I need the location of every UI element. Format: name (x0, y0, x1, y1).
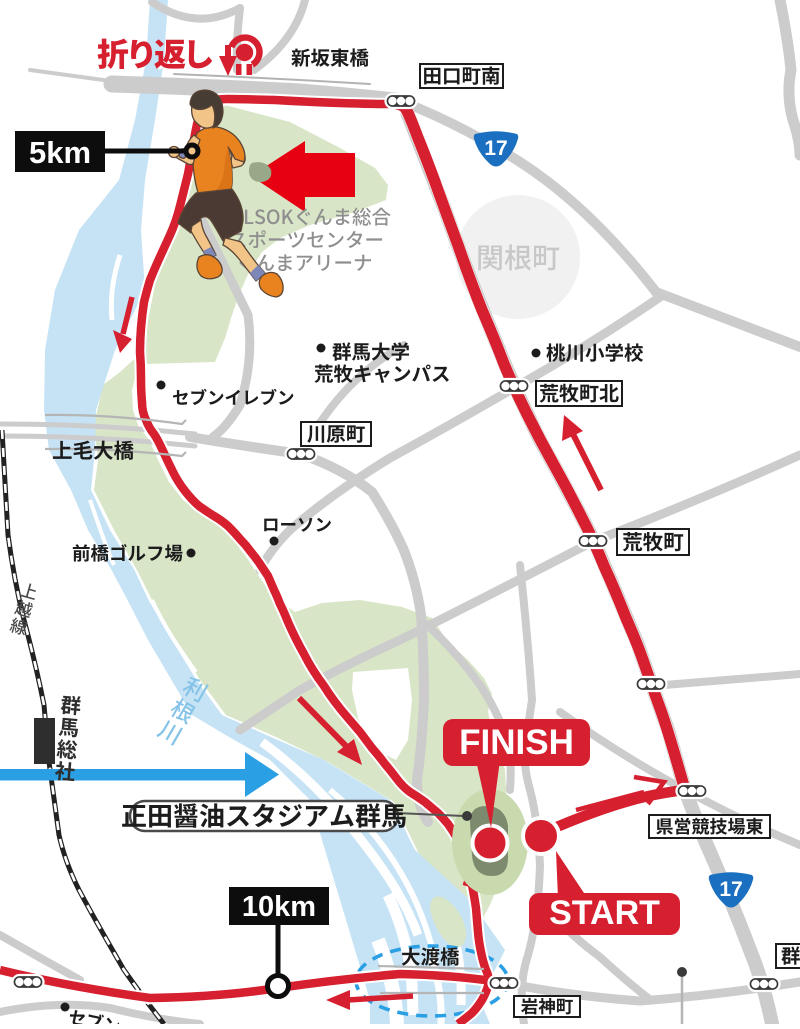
svg-text:17: 17 (719, 878, 742, 901)
svg-text:5km: 5km (29, 135, 91, 170)
svg-text:START: START (549, 894, 660, 932)
svg-text:10km: 10km (242, 891, 316, 923)
svg-text:17: 17 (484, 137, 507, 160)
svg-text:FINISH: FINISH (459, 723, 574, 762)
